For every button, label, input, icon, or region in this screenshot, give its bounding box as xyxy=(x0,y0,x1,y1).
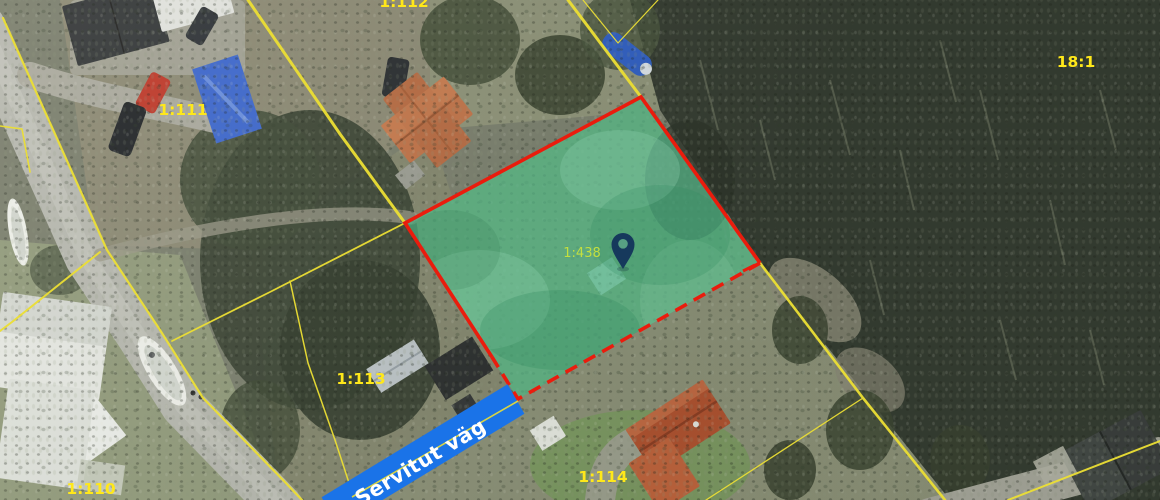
cadastral-layer: Servitut väg 1:112 1:111 18:1 1:113 1:11… xyxy=(0,0,1160,500)
easement-band[interactable]: Servitut väg xyxy=(322,384,525,500)
parcel-label-1-112: 1:112 xyxy=(379,0,428,11)
easement-band-shape[interactable] xyxy=(322,384,525,500)
boundary-line-bottomright xyxy=(1008,441,1160,500)
parcel-label-1-110: 1:110 xyxy=(66,480,116,498)
boundary-line-southwest xyxy=(172,223,405,341)
boundary-line-southeast-thin xyxy=(706,398,863,500)
boundary-line-1-111 xyxy=(248,0,405,223)
boundary-line-1-110 xyxy=(0,252,100,331)
map-pin-hole xyxy=(618,239,628,249)
easement-label: Servitut väg xyxy=(351,414,491,500)
parcel-label-1-114: 1:114 xyxy=(578,468,628,486)
boundary-line-road xyxy=(3,18,302,500)
boundary-line-east xyxy=(760,263,945,500)
selected-parcel-label: 1:438 xyxy=(563,246,600,261)
boundary-line-west-stub xyxy=(0,126,30,172)
parcel-label-18-1: 18:1 xyxy=(1057,53,1096,71)
parcel-label-1-111: 1:111 xyxy=(158,101,207,119)
boundary-line-north xyxy=(568,0,641,97)
parcel-label-1-113: 1:113 xyxy=(336,370,385,388)
map-canvas[interactable]: Servitut väg 1:112 1:111 18:1 1:113 1:11… xyxy=(0,0,1160,500)
